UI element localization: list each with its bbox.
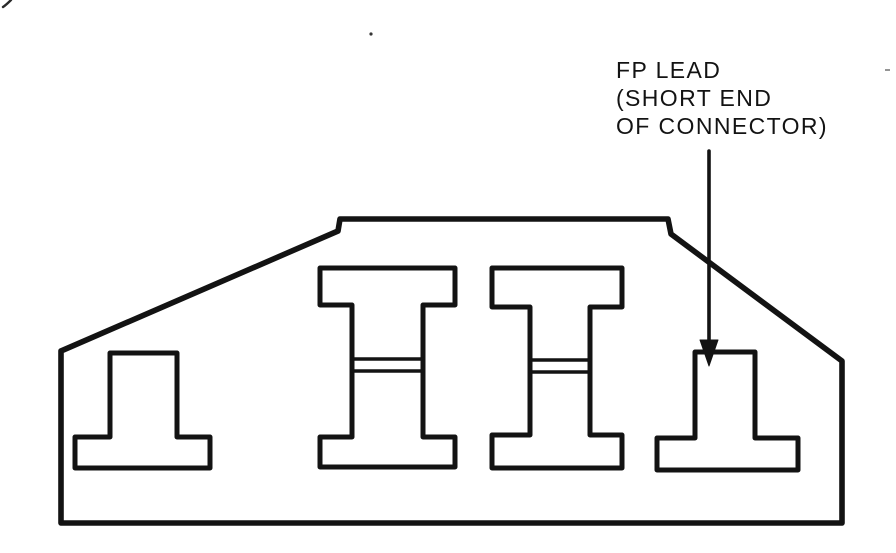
fp-lead-cavity	[657, 352, 798, 470]
ibeam-cavity-2	[492, 268, 622, 468]
lead-cavity-left	[75, 353, 210, 468]
ibeam-cavity-1	[320, 268, 455, 467]
annotation-label: FP LEAD (SHORT END OF CONNECTOR)	[616, 56, 828, 140]
annotation-line-1: FP LEAD	[616, 56, 828, 84]
annotation-line-2: (SHORT END	[616, 84, 828, 112]
scanned-page: FP LEAD (SHORT END OF CONNECTOR)	[0, 0, 896, 553]
scan-artifact-dash	[885, 69, 890, 71]
scan-artifact-corner-tick	[3, 0, 11, 7]
scan-artifact-dot	[369, 32, 372, 35]
annotation-line-3: OF CONNECTOR)	[616, 112, 828, 140]
